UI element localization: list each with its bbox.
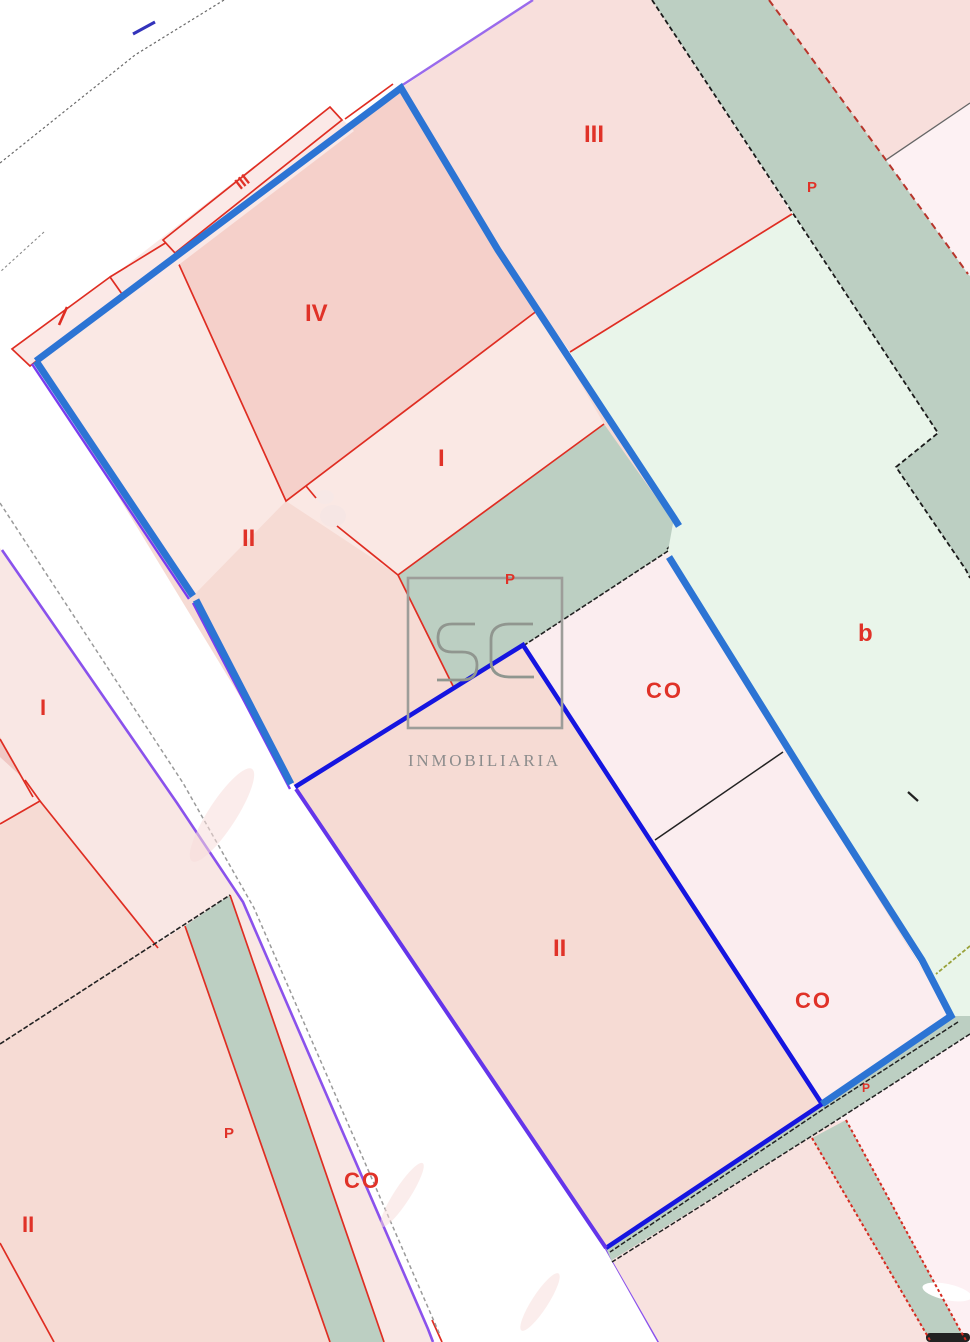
svg-text:P: P bbox=[862, 1081, 870, 1095]
svg-text:I: I bbox=[40, 695, 46, 720]
svg-text:CO: CO bbox=[795, 988, 832, 1013]
svg-text:P: P bbox=[505, 571, 515, 588]
svg-text:P: P bbox=[224, 1125, 234, 1142]
svg-text:P: P bbox=[807, 179, 817, 196]
svg-text:INMOBILIARIA: INMOBILIARIA bbox=[408, 751, 561, 770]
svg-text:II: II bbox=[22, 1212, 34, 1237]
svg-text:II: II bbox=[553, 935, 566, 962]
svg-text:III: III bbox=[584, 121, 604, 148]
svg-text:II: II bbox=[242, 525, 255, 552]
svg-text:CO: CO bbox=[646, 678, 683, 703]
svg-text:I: I bbox=[438, 445, 445, 472]
svg-text:b: b bbox=[858, 620, 873, 647]
svg-text:CO: CO bbox=[344, 1168, 381, 1193]
svg-text:IV: IV bbox=[305, 300, 328, 327]
